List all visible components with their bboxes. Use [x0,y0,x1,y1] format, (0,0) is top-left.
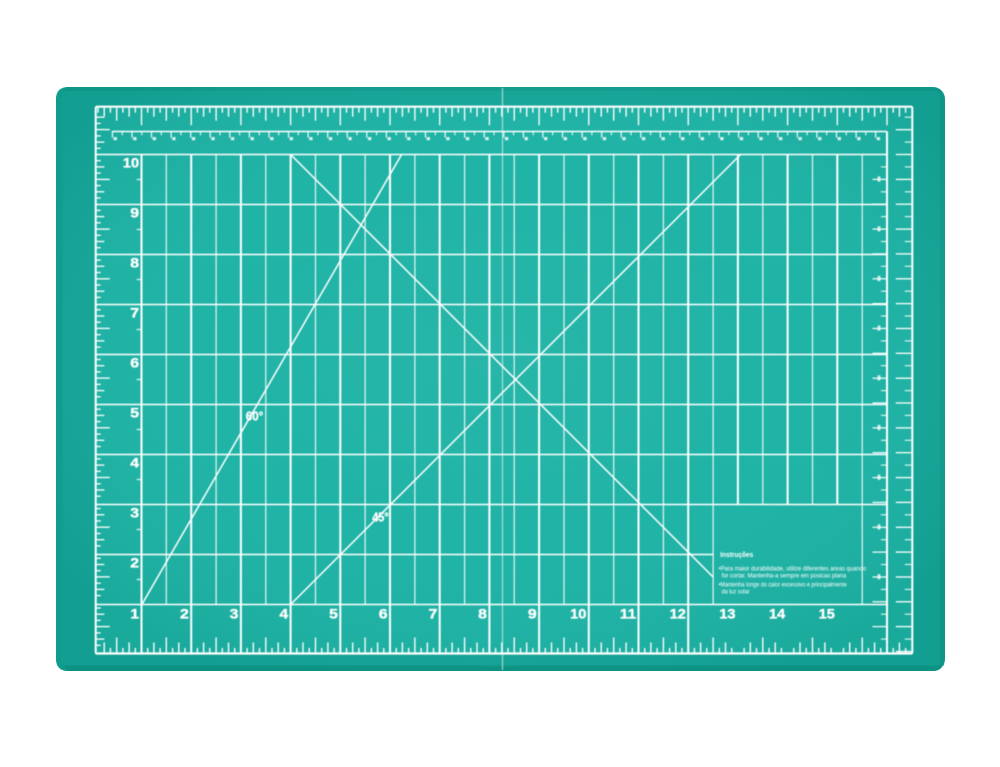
svg-text:45°: 45° [372,510,389,525]
svg-text:12: 12 [670,607,687,622]
svg-text:4: 4 [279,607,288,622]
svg-text:for cortar. Mantenha-a sempre: for cortar. Mantenha-a sempre em posicao… [722,573,847,580]
svg-text:10: 10 [123,156,139,171]
svg-text:3: 3 [230,607,239,622]
svg-text:7: 7 [130,306,139,321]
svg-text:9: 9 [130,206,139,221]
svg-text:6: 6 [130,356,139,371]
svg-text:10: 10 [570,607,586,622]
svg-text:60°: 60° [246,408,263,423]
svg-text:•Para maior durabilidade, util: •Para maior durabilidade, utilize difere… [719,565,867,572]
svg-text:8: 8 [130,256,139,271]
svg-text:2: 2 [180,607,189,622]
svg-text:15: 15 [819,607,836,622]
svg-text:•Mantenha longe do calor exces: •Mantenha longe do calor excessivo e pri… [719,582,848,589]
svg-text:2: 2 [130,556,139,571]
svg-text:3: 3 [130,506,139,521]
svg-text:5: 5 [130,406,139,421]
svg-text:11: 11 [620,607,637,622]
svg-text:4: 4 [130,456,139,471]
svg-text:9: 9 [528,607,537,622]
svg-text:5: 5 [329,607,338,622]
svg-text:7: 7 [429,607,438,622]
svg-text:6: 6 [379,607,388,622]
svg-text:1: 1 [130,607,139,622]
svg-text:8: 8 [478,607,487,622]
svg-text:13: 13 [719,607,736,622]
svg-text:da luz solar: da luz solar [722,589,750,596]
svg-text:14: 14 [769,607,786,622]
svg-text:Instruções: Instruções [720,550,753,559]
